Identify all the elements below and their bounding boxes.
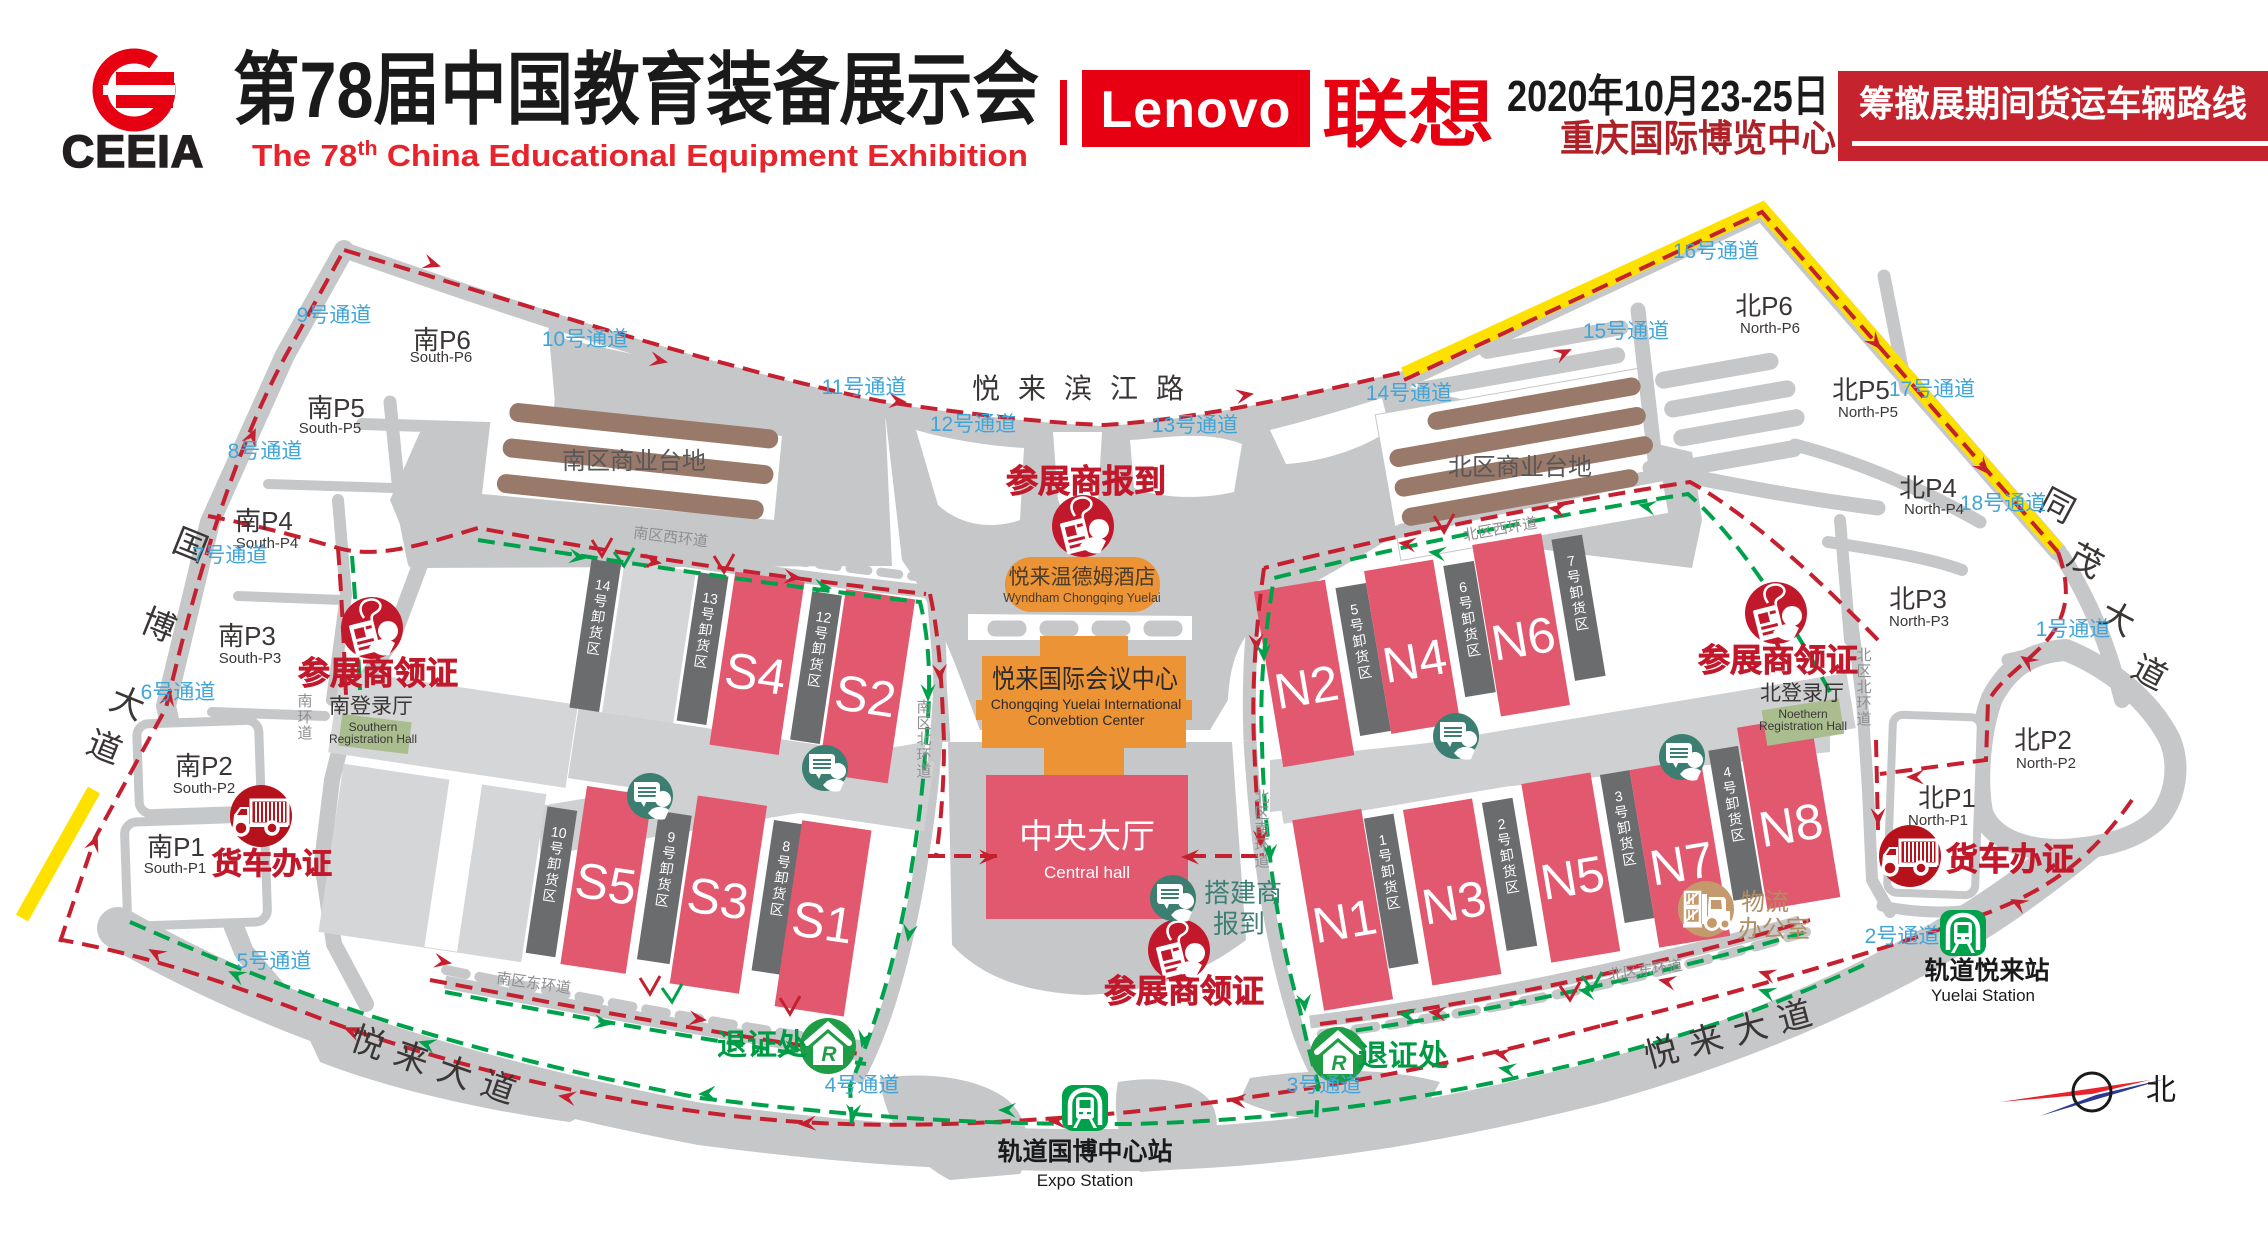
svg-text:North-P2: North-P2 xyxy=(2016,755,2076,772)
svg-text:北P5: 北P5 xyxy=(1832,375,1890,405)
svg-text:第78届中国教育装备展示会: 第78届中国教育装备展示会 xyxy=(233,45,1039,134)
svg-text:北区商业台地: 北区商业台地 xyxy=(1448,454,1592,481)
svg-text:N4: N4 xyxy=(1378,628,1450,694)
svg-text:N1: N1 xyxy=(1308,888,1380,954)
svg-text:轨道国博中心站: 轨道国博中心站 xyxy=(997,1137,1172,1166)
svg-text:北P1: 北P1 xyxy=(1918,783,1976,813)
svg-text:N6: N6 xyxy=(1487,606,1559,672)
svg-text:办公室: 办公室 xyxy=(1738,916,1810,943)
svg-text:参展商报到: 参展商报到 xyxy=(1006,463,1166,499)
svg-text:物流: 物流 xyxy=(1741,889,1789,916)
svg-text:2号通道: 2号通道 xyxy=(1865,925,1940,948)
svg-text:南P1: 南P1 xyxy=(147,832,205,862)
svg-text:中央大厅: 中央大厅 xyxy=(1019,818,1155,856)
svg-text:Registration Hall: Registration Hall xyxy=(1759,719,1847,733)
svg-text:15号通道: 15号通道 xyxy=(1583,320,1669,343)
svg-text:北P6: 北P6 xyxy=(1735,291,1793,321)
svg-text:南P2: 南P2 xyxy=(175,751,233,781)
svg-text:北: 北 xyxy=(2146,1074,2176,1107)
svg-text:11号通道: 11号通道 xyxy=(822,376,907,399)
svg-text:S4: S4 xyxy=(721,641,790,705)
svg-text:Registration Hall: Registration Hall xyxy=(329,732,417,746)
svg-text:South-P1: South-P1 xyxy=(144,860,207,877)
svg-text:7号通道: 7号通道 xyxy=(193,544,268,567)
svg-text:参展商领证: 参展商领证 xyxy=(1104,973,1264,1009)
svg-text:货车办证: 货车办证 xyxy=(212,847,332,881)
svg-text:南P4: 南P4 xyxy=(235,506,293,536)
svg-text:17号通道: 17号通道 xyxy=(1889,378,1975,401)
svg-text:6号通道: 6号通道 xyxy=(141,681,216,704)
svg-text:N2: N2 xyxy=(1270,654,1342,720)
svg-text:13号通道: 13号通道 xyxy=(1152,414,1238,437)
svg-text:Convebtion Center: Convebtion Center xyxy=(1028,712,1145,728)
svg-text:货车办证: 货车办证 xyxy=(1946,841,2074,877)
svg-text:5号通道: 5号通道 xyxy=(237,950,312,973)
svg-text:North-P5: North-P5 xyxy=(1838,404,1898,421)
svg-text:18号通道: 18号通道 xyxy=(1960,492,2046,515)
svg-text:Chongqing Yuelai International: Chongqing Yuelai International xyxy=(991,696,1181,712)
svg-text:14号通道: 14号通道 xyxy=(1366,382,1452,405)
svg-text:南区北环道: 南区北环道 xyxy=(916,699,931,780)
svg-text:Expo Station: Expo Station xyxy=(1037,1171,1133,1190)
svg-text:退证处: 退证处 xyxy=(717,1029,807,1062)
svg-text:4号通道: 4号通道 xyxy=(825,1074,900,1097)
svg-text:8号通道: 8号通道 xyxy=(228,440,303,463)
svg-text:Lenovo: Lenovo xyxy=(1101,81,1292,139)
svg-text:联想: 联想 xyxy=(1322,73,1494,156)
svg-text:北P3: 北P3 xyxy=(1889,584,1947,614)
svg-text:N5: N5 xyxy=(1536,845,1608,911)
svg-text:南环道: 南环道 xyxy=(297,693,312,742)
svg-text:北P2: 北P2 xyxy=(2014,725,2072,755)
svg-text:参展商领证: 参展商领证 xyxy=(1698,642,1858,678)
svg-text:筹撤展期间货运车辆路线: 筹撤展期间货运车辆路线 xyxy=(1859,83,2247,124)
svg-text:南P5: 南P5 xyxy=(307,393,365,423)
svg-text:北P4: 北P4 xyxy=(1899,473,1957,503)
svg-text:12号通道: 12号通道 xyxy=(930,413,1016,436)
svg-text:Wyndham Chongqing Yuelai: Wyndham Chongqing Yuelai xyxy=(1003,591,1160,605)
svg-text:South-P3: South-P3 xyxy=(219,650,282,667)
svg-text:悦来滨江路: 悦来滨江路 xyxy=(972,373,1202,404)
svg-text:悦来温德姆酒店: 悦来温德姆酒店 xyxy=(1009,566,1156,589)
svg-text:南登录厅: 南登录厅 xyxy=(329,695,413,718)
svg-text:北区北环道: 北区北环道 xyxy=(1856,647,1871,728)
svg-text:N3: N3 xyxy=(1418,870,1490,936)
svg-text:N8: N8 xyxy=(1755,792,1827,858)
svg-text:退证处: 退证处 xyxy=(1358,1040,1448,1073)
svg-text:3号通道: 3号通道 xyxy=(1287,1074,1362,1097)
svg-text:参展商领证: 参展商领证 xyxy=(298,655,458,691)
svg-text:South-P2: South-P2 xyxy=(173,780,236,797)
svg-text:S3: S3 xyxy=(683,866,752,930)
svg-text:S1: S1 xyxy=(788,890,857,954)
svg-text:South-P5: South-P5 xyxy=(299,420,362,437)
svg-text:2020年10月23-25日: 2020年10月23-25日 xyxy=(1507,72,1829,121)
svg-text:北登录厅: 北登录厅 xyxy=(1760,682,1844,705)
svg-text:10号通道: 10号通道 xyxy=(542,328,628,351)
svg-text:South-P6: South-P6 xyxy=(410,349,473,366)
svg-text:Yuelai Station: Yuelai Station xyxy=(1931,986,2035,1005)
svg-text:North-P1: North-P1 xyxy=(1908,812,1968,829)
svg-text:Central hall: Central hall xyxy=(1044,863,1130,882)
svg-text:1号通道: 1号通道 xyxy=(2036,618,2111,641)
svg-text:North-P3: North-P3 xyxy=(1889,613,1949,630)
svg-text:南P3: 南P3 xyxy=(218,621,276,651)
svg-text:CEEIA: CEEIA xyxy=(62,126,205,177)
svg-text:16号通道: 16号通道 xyxy=(1673,240,1759,263)
svg-text:南区商业台地: 南区商业台地 xyxy=(562,448,706,475)
svg-text:North-P6: North-P6 xyxy=(1740,320,1800,337)
svg-text:悦来国际会议中心: 悦来国际会议中心 xyxy=(992,664,1178,694)
svg-text:S2: S2 xyxy=(831,664,900,728)
svg-text:9号通道: 9号通道 xyxy=(297,304,372,327)
svg-text:North-P4: North-P4 xyxy=(1904,501,1964,518)
svg-text:搭建商: 搭建商 xyxy=(1204,878,1282,908)
svg-text:北区南环道: 北区南环道 xyxy=(1254,789,1269,870)
svg-text:重庆国际博览中心: 重庆国际博览中心 xyxy=(1560,118,1836,159)
svg-text:S5: S5 xyxy=(571,852,640,916)
svg-text:轨道悦来站: 轨道悦来站 xyxy=(1924,956,2049,985)
svg-text:报到: 报到 xyxy=(1213,909,1265,939)
